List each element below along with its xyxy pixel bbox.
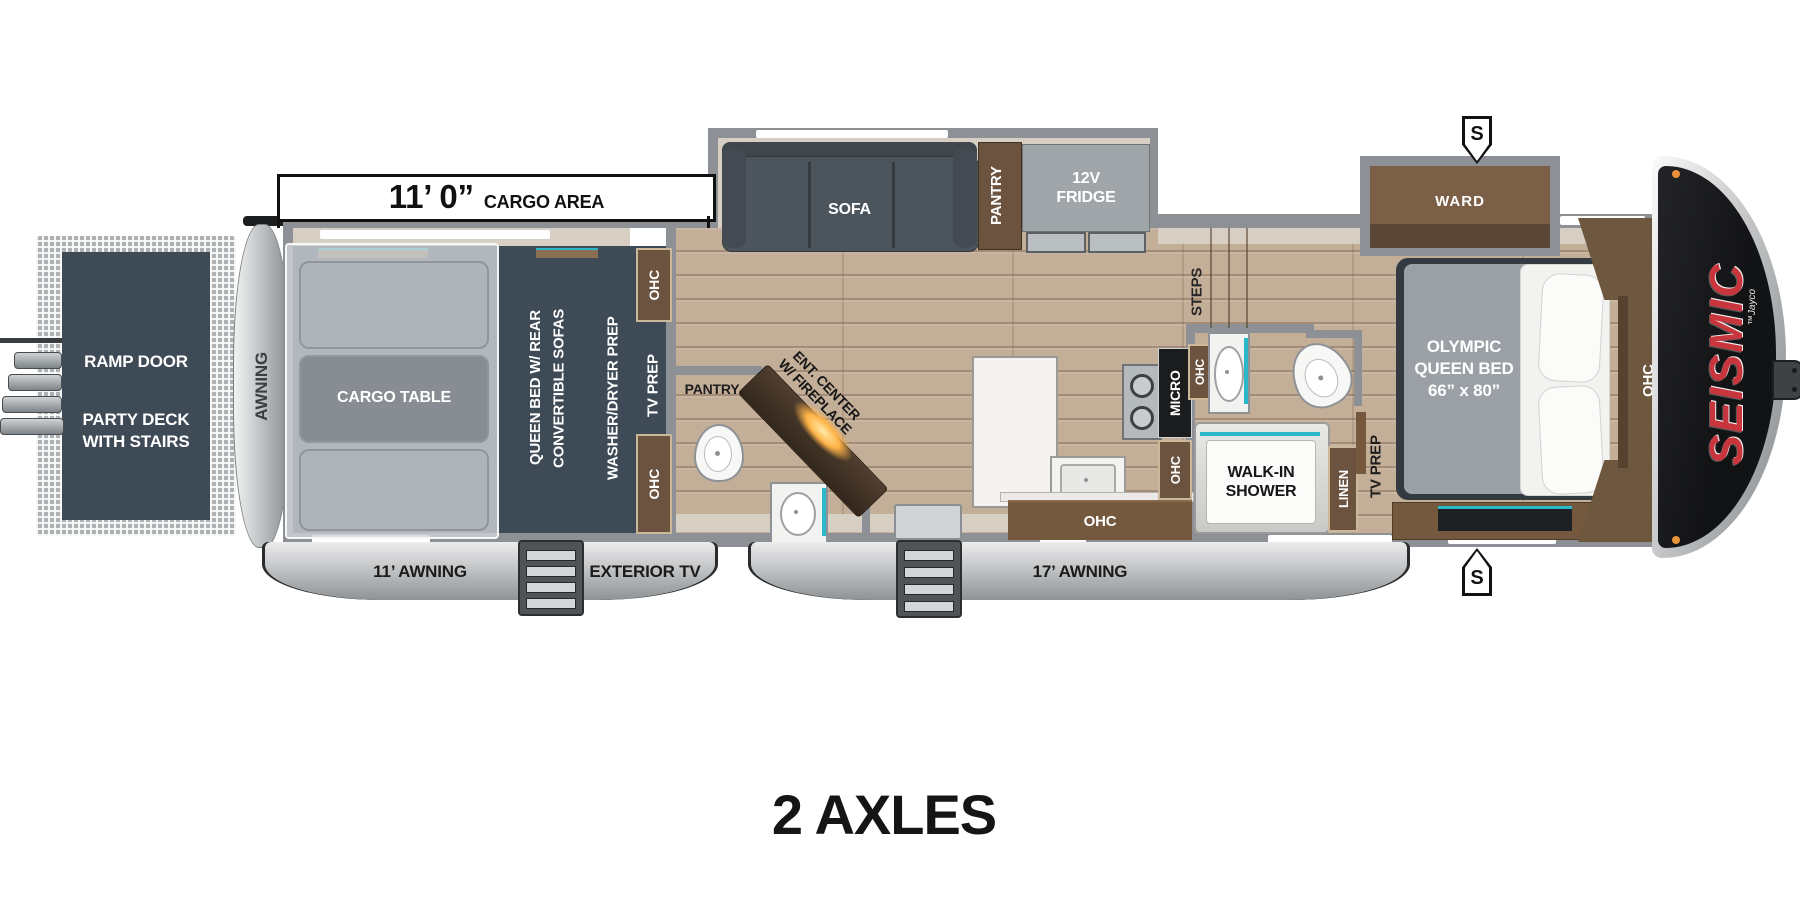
ohc-label: OHC [1050, 511, 1150, 531]
shower-label: WALK-IN [1227, 463, 1294, 482]
pantry-slide-label: PANTRY [988, 151, 1005, 241]
window-slot [320, 230, 550, 239]
microwave: MICRO [1158, 348, 1192, 438]
cargo-happijac-bed: CARGO TABLE [285, 243, 499, 539]
pantry-cabinet-slide: PANTRY [978, 142, 1022, 250]
cargo-dimension-callout: 11’ 0” CARGO AREA [277, 174, 716, 222]
sofa: SOFA [722, 142, 977, 250]
steps-label: STEPS [1186, 252, 1208, 332]
bed-cushion-top [299, 261, 489, 349]
window-slot [756, 130, 948, 138]
ohc-label: OHC [646, 469, 662, 500]
floorplan: RAMP DOOR PARTY DECK WITH STAIRS AWNING … [0, 0, 1800, 920]
awning-11-band: 11’ AWNING EXTERIOR TV [262, 542, 718, 600]
wall-toilet-nook-v [1354, 330, 1362, 406]
s-badge-bottom: S [1462, 548, 1492, 596]
steps-lines [1210, 228, 1212, 328]
awning-17-band: 17’ AWNING [748, 542, 1410, 600]
entry-steps [896, 540, 962, 618]
s-badge-top: S [1462, 116, 1492, 164]
awning-11-label: 11’ AWNING [350, 562, 490, 582]
entry-door [894, 504, 962, 540]
ohc-label: OHC [1193, 359, 1207, 385]
shower-label: SHOWER [1226, 482, 1297, 501]
cargo-table: CARGO TABLE [305, 383, 483, 413]
dimension-tick [277, 216, 280, 228]
washer-dryer-prep-label: WASHER/DRYER PREP [600, 288, 626, 508]
ward-cabinet: WARD [1370, 166, 1550, 248]
deck-ramp-door-label: RAMP DOOR [62, 352, 210, 372]
walk-in-shower: WALK-IN SHOWER [1194, 422, 1330, 534]
wall-top-mid [1154, 214, 1374, 228]
sofa-label: SOFA [722, 200, 977, 220]
ohc-cabinet-cargo-top: OHC [636, 248, 672, 322]
tv-prep-front-label: TV PREP [1364, 424, 1388, 510]
bed-cushion-bottom [299, 449, 489, 531]
dimension-unit: CARGO AREA [484, 192, 604, 213]
olympic-queen-bed: OLYMPIC QUEEN BED 66” x 80” [1396, 258, 1610, 500]
wall-bath-rear-top [670, 366, 762, 375]
ward-label: WARD [1401, 192, 1519, 210]
dimension-tick [707, 216, 710, 228]
bedroom-tv [1438, 506, 1572, 531]
rear-bath-sink [770, 482, 828, 544]
patio-steps [518, 540, 584, 616]
kitchen-lower-ohc: OHC [1008, 500, 1192, 540]
micro-label: MICRO [1167, 355, 1183, 431]
steps-lines [1228, 228, 1230, 328]
hitch-pin [1772, 360, 1800, 400]
deck-stairs [0, 348, 80, 438]
cargo-counter-shelf2 [536, 248, 598, 258]
exterior-tv-label: EXTERIOR TV [580, 562, 710, 582]
ohc-cabinet-kitchen-side: OHC [1158, 440, 1192, 500]
rear-bath-toilet [694, 424, 744, 482]
fridge-drawer [1088, 232, 1146, 253]
bed-label: OLYMPIC QUEEN BED 66” x 80” [1408, 336, 1520, 402]
axles-label: 2 AXLES [634, 782, 1134, 846]
steps-lines [1246, 228, 1248, 328]
ohc-label: OHC [1168, 456, 1183, 484]
pantry-label: PANTRY [674, 380, 750, 398]
ohc-cabinet-cargo-bottom: OHC [636, 434, 672, 534]
fridge-12v: 12V FRIDGE [1022, 144, 1150, 232]
deck-stairs-label: WITH STAIRS [62, 432, 210, 452]
awning-17-label: 17’ AWNING [1010, 562, 1150, 582]
kitchen-island [972, 356, 1058, 508]
fridge-drawer [1026, 232, 1086, 253]
bottom-trim-right [956, 514, 1008, 532]
rear-awning-label: AWNING [252, 352, 272, 421]
deck-panel: RAMP DOOR PARTY DECK WITH STAIRS [62, 252, 210, 520]
mid-bath-sink [1208, 332, 1250, 414]
linen-label: LINEN [1336, 470, 1351, 508]
dimension-value: 11’ 0” [389, 177, 474, 217]
range-cooktop [1122, 364, 1162, 440]
queen-bed-label: QUEEN BED W/ REAR CONVERTIBLE SOFAS [524, 266, 574, 510]
bed-cushion-mid: CARGO TABLE [299, 355, 489, 443]
tv-prep-cargo-label: TV PREP [640, 350, 666, 422]
ohc-label: OHC [646, 270, 662, 301]
jayco-byline: ™Jayco [1745, 271, 1759, 343]
deck-party-label: PARTY DECK [62, 410, 210, 430]
linen-closet: LINEN [1328, 446, 1358, 532]
deck-rail [0, 338, 62, 343]
